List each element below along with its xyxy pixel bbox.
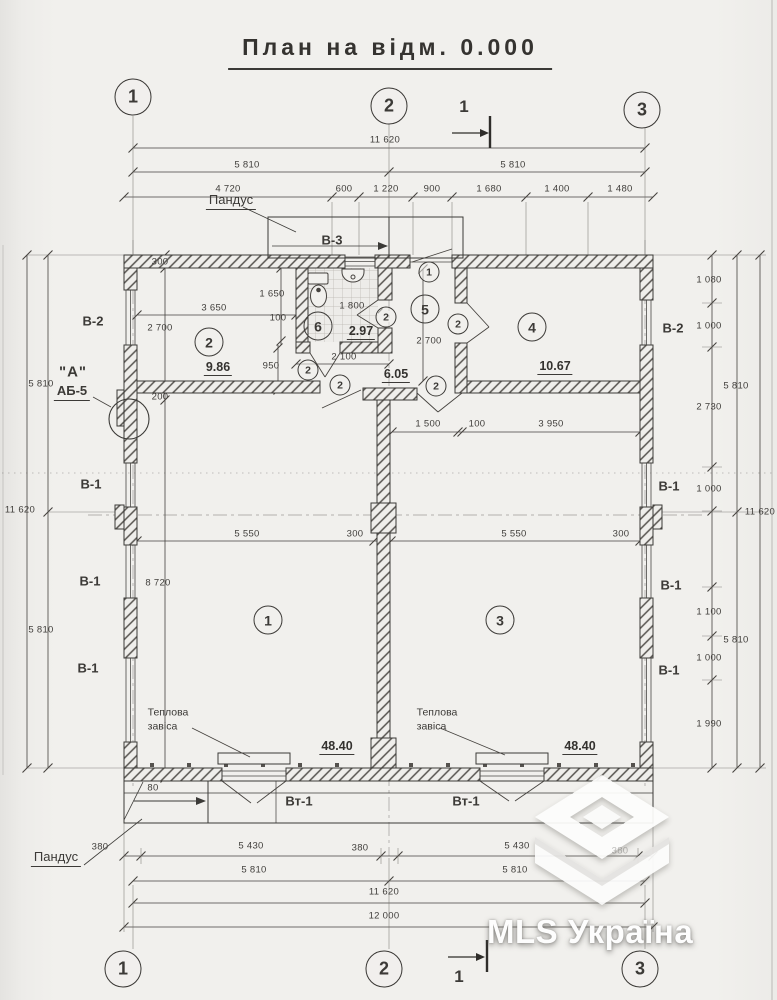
dim-label: 300	[152, 257, 169, 268]
watermark-logo-icon	[535, 775, 669, 905]
section-mark-label: 1	[459, 97, 468, 117]
watermark-text: MLS Україна	[487, 913, 693, 951]
dim-label: 300	[613, 529, 630, 540]
floor-plan-linework	[0, 0, 777, 1000]
dim-label: 1 500	[415, 419, 440, 430]
dim-label: 5 810	[502, 865, 527, 876]
grid-axis-circle: 1	[105, 951, 142, 988]
dim-label: 900	[424, 184, 441, 195]
text-label: В-1	[78, 661, 99, 676]
dim-label: 5 810	[500, 160, 525, 171]
dim-label: 5 810	[241, 865, 266, 876]
element-mark-circle: 1	[419, 262, 440, 283]
dim-label: 5 550	[501, 529, 526, 540]
dim-label: 950	[263, 361, 280, 372]
dim-label: 100	[469, 419, 486, 430]
text-label: Пандус	[206, 192, 256, 210]
dim-label: 11 620	[5, 505, 35, 516]
dim-label: 5 550	[234, 529, 259, 540]
dim-label: 2 700	[416, 336, 441, 347]
dim-label: 5 430	[504, 841, 529, 852]
text-label: В-3	[322, 233, 343, 248]
room-number-circle: 5	[411, 295, 440, 324]
text-label: Теплова завіса	[417, 706, 458, 733]
dim-label: 1 000	[696, 321, 721, 332]
room-area: 2.97	[347, 324, 375, 340]
grid-axis-circle: 1	[115, 79, 152, 116]
dim-label: 11 620	[369, 887, 399, 898]
grid-axis-circle: 2	[366, 951, 403, 988]
dim-label: 1 800	[339, 301, 364, 312]
room-number-circle: 2	[195, 328, 224, 357]
dim-label: 11 620	[370, 135, 400, 146]
dim-label: 1 100	[696, 607, 721, 618]
text-label: Вт-1	[285, 794, 312, 809]
text-label: Теплова завіса	[148, 706, 189, 733]
dim-label: 5 430	[238, 841, 263, 852]
dim-label: 12 000	[369, 911, 400, 922]
dim-label: 1 220	[373, 184, 398, 195]
dim-label: 1 650	[259, 289, 284, 300]
element-mark-circle: 2	[376, 307, 397, 328]
blueprint-sheet: План на відм. 0.000 11 6205 8105 8104 72…	[0, 0, 777, 1000]
room-area: 6.05	[382, 367, 410, 383]
text-label: В-1	[81, 477, 102, 492]
dim-label: 600	[336, 184, 353, 195]
page-title: План на відм. 0.000	[228, 34, 552, 70]
grid-axis-circle: 3	[624, 92, 661, 129]
room-area: 9.86	[204, 360, 232, 376]
dim-label: 3 650	[201, 303, 226, 314]
element-mark-circle: 2	[298, 360, 319, 381]
dim-label: 2 100	[331, 352, 356, 363]
dim-label: 1 480	[607, 184, 632, 195]
dim-label: 1 080	[696, 275, 721, 286]
dim-label: 5 810	[28, 379, 53, 390]
dim-label: 100	[270, 313, 287, 324]
dim-label: 1 000	[696, 484, 721, 495]
dim-label: 11 620	[745, 507, 775, 518]
text-label: В-1	[659, 663, 680, 678]
room-number-circle: 4	[518, 313, 547, 342]
porch-top	[243, 207, 463, 258]
room-number-circle: 6	[304, 312, 333, 341]
room-area: 48.40	[562, 739, 597, 755]
room-number-circle: 3	[486, 606, 515, 635]
dim-label: 5 810	[234, 160, 259, 171]
dim-label: 80	[147, 783, 158, 794]
dim-label: 200	[152, 392, 169, 403]
dim-label: 1 990	[696, 719, 721, 730]
text-label: АБ-5	[54, 383, 90, 401]
text-label: В-1	[661, 578, 682, 593]
section-mark-label: 1	[454, 967, 463, 987]
element-mark-circle: 2	[330, 375, 351, 396]
dim-label: 1 000	[696, 653, 721, 664]
text-label: "А"	[59, 364, 87, 381]
text-label: Вт-1	[452, 794, 479, 809]
text-label: В-1	[80, 574, 101, 589]
room-number-circle: 1	[254, 606, 283, 635]
text-label: В-1	[659, 479, 680, 494]
element-mark-circle: 2	[426, 376, 447, 397]
dim-label: 380	[92, 842, 109, 853]
grid-axis-circle: 2	[371, 88, 408, 125]
dim-label: 2 730	[696, 402, 721, 413]
room-area: 48.40	[319, 739, 354, 755]
dim-label: 300	[347, 529, 364, 540]
dim-label: 1 680	[476, 184, 501, 195]
dim-label: 1 400	[544, 184, 569, 195]
grid-axis-circle: 3	[622, 951, 659, 988]
element-mark-circle: 2	[448, 314, 469, 335]
dim-label: 8 720	[145, 578, 170, 589]
dim-label: 5 810	[723, 635, 748, 646]
section-cut-marks	[448, 116, 490, 972]
dim-label: 5 810	[28, 625, 53, 636]
text-label: Пандус	[31, 849, 81, 867]
dim-label: 2 700	[147, 323, 172, 334]
text-label: В-2	[663, 321, 684, 336]
dim-label: 3 950	[538, 419, 563, 430]
dim-label: 380	[352, 843, 369, 854]
dim-label: 380	[612, 846, 629, 857]
text-label: В-2	[83, 314, 104, 329]
room-area: 10.67	[537, 359, 572, 375]
dim-label: 5 810	[723, 381, 748, 392]
